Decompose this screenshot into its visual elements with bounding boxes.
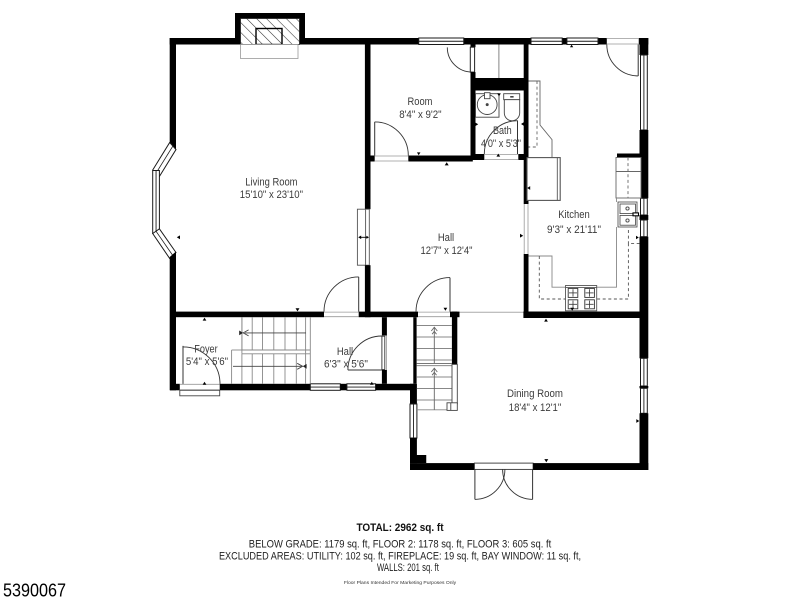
svg-text:BELOW GRADE: 1179 sq. ft, FLOO: BELOW GRADE: 1179 sq. ft, FLOOR 2: 1178 … <box>249 538 551 550</box>
svg-text:Bath: Bath <box>493 125 512 137</box>
svg-text:TOTAL: 2962 sq. ft: TOTAL: 2962 sq. ft <box>356 522 443 534</box>
svg-text:Kitchen: Kitchen <box>558 209 590 221</box>
svg-text:Living Room: Living Room <box>245 177 297 189</box>
svg-text:EXCLUDED AREAS: UTILITY: 102 s: EXCLUDED AREAS: UTILITY: 102 sq. ft, FIR… <box>219 550 581 562</box>
svg-text:Foyer: Foyer <box>194 344 218 356</box>
svg-text:5'4" x 5'6": 5'4" x 5'6" <box>186 356 228 368</box>
svg-text:Room: Room <box>408 96 433 108</box>
svg-text:WALLS: 201 sq. ft: WALLS: 201 sq. ft <box>377 562 439 574</box>
svg-text:Hall: Hall <box>337 346 353 358</box>
svg-text:Floor Plans Intended For Marke: Floor Plans Intended For Marketing Purpo… <box>344 580 457 586</box>
svg-text:8'4" x 9'2": 8'4" x 9'2" <box>399 109 441 121</box>
svg-text:15'10" x 23'10": 15'10" x 23'10" <box>240 189 303 201</box>
svg-text:12'7" x 12'4": 12'7" x 12'4" <box>421 245 473 257</box>
svg-text:9'3" x 21'11": 9'3" x 21'11" <box>547 224 601 236</box>
svg-text:5390067: 5390067 <box>3 580 66 600</box>
svg-text:Dining Room: Dining Room <box>507 388 563 400</box>
svg-text:6'3" x 5'6": 6'3" x 5'6" <box>324 359 368 371</box>
svg-text:Hall: Hall <box>438 232 454 244</box>
svg-text:18'4" x 12'1": 18'4" x 12'1" <box>509 402 562 414</box>
svg-text:4'0" x 5'3": 4'0" x 5'3" <box>481 138 521 150</box>
